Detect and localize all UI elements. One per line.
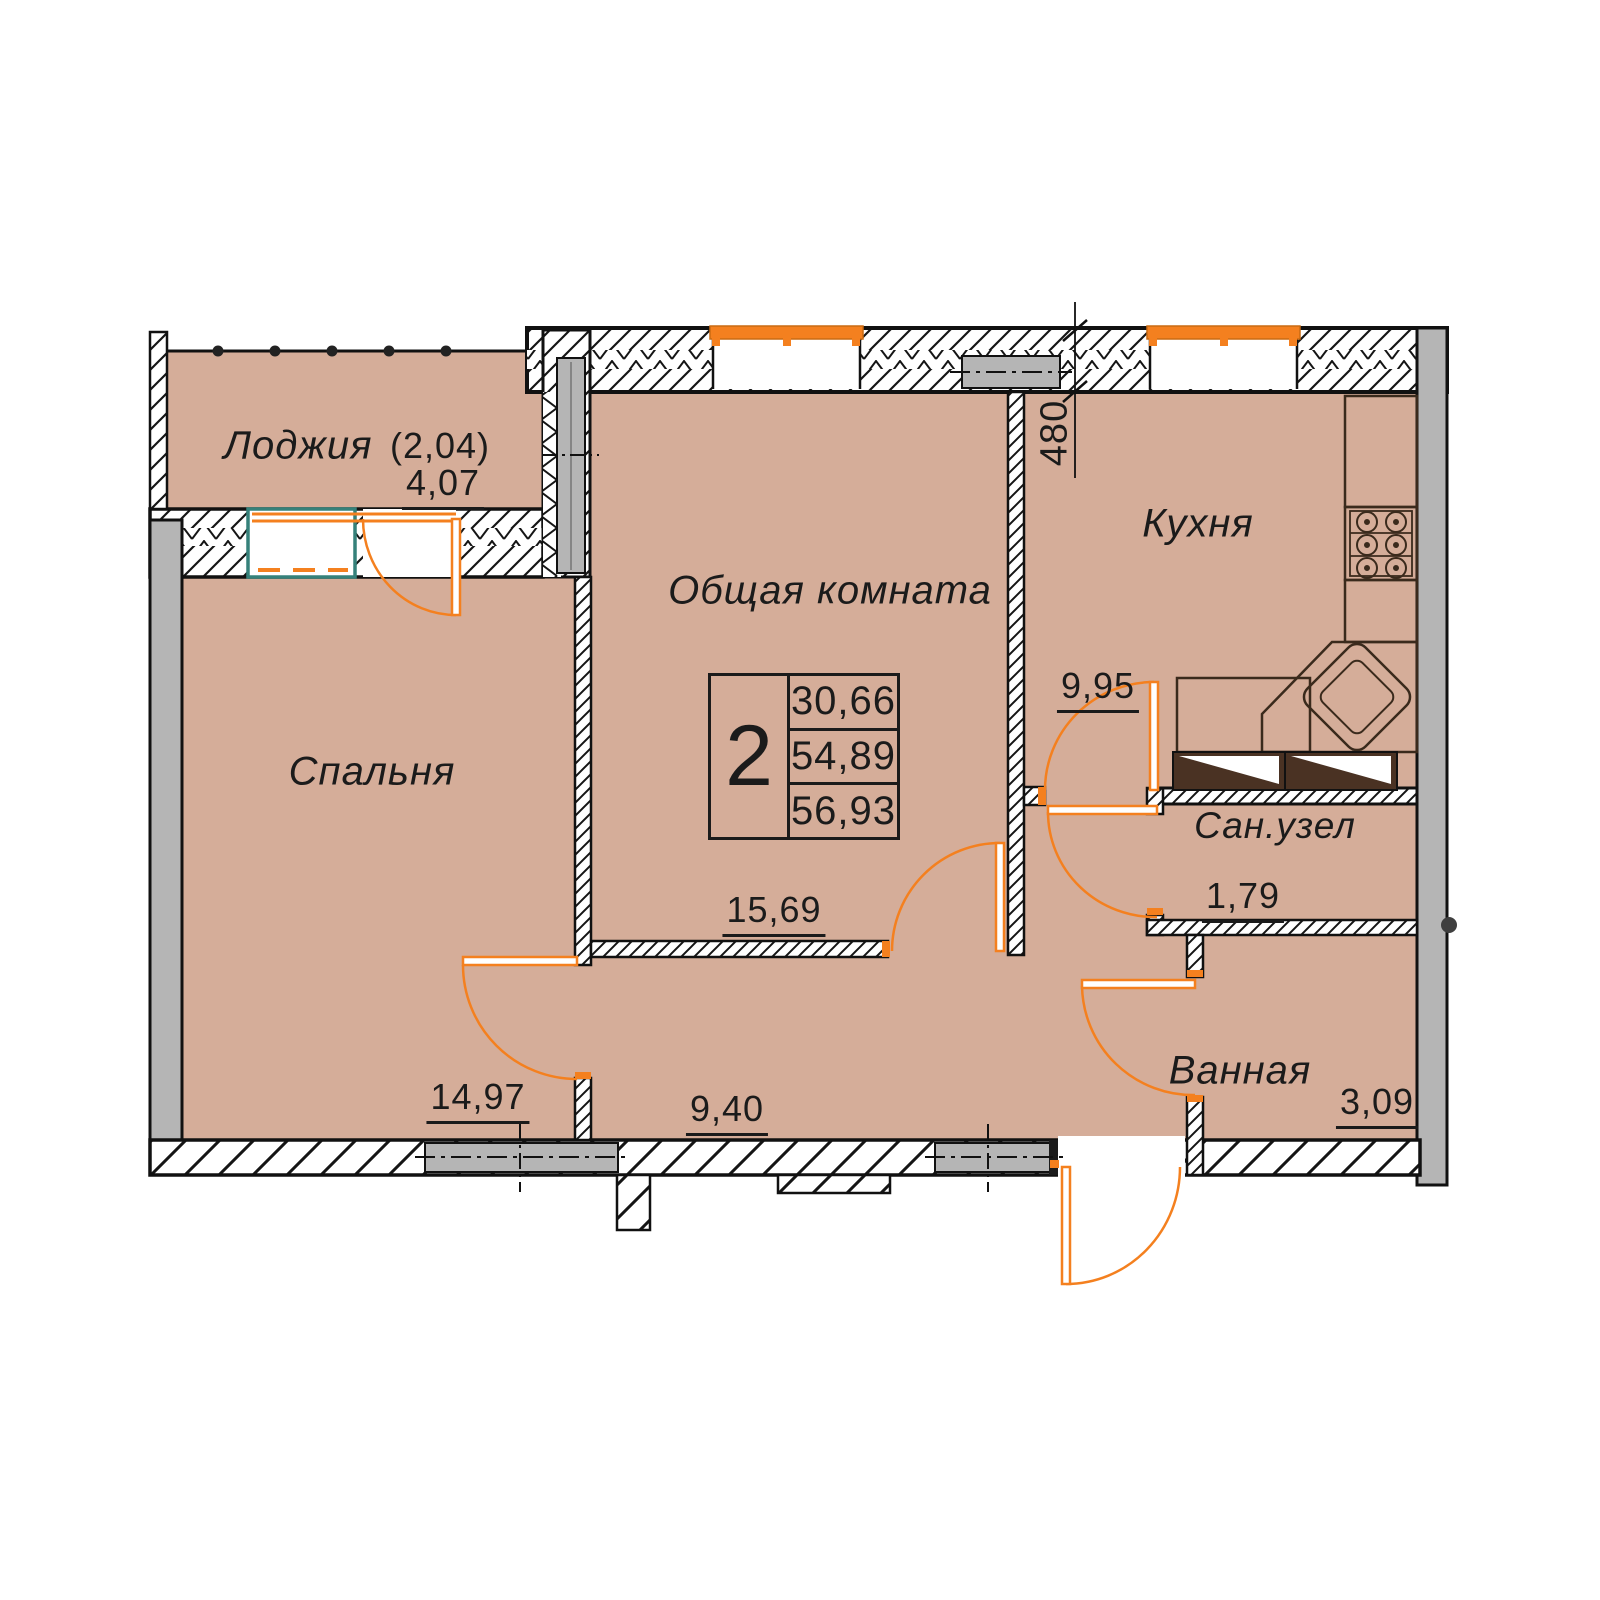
- living-area-value: 30,66: [790, 676, 897, 731]
- loggia-area: 4,07: [402, 462, 484, 504]
- room-label-living: Общая комната: [668, 569, 992, 614]
- rooms-count: 2: [711, 676, 790, 837]
- kitchen-area: 9,95: [1057, 665, 1139, 707]
- kitchen-window-icon: [1147, 326, 1300, 389]
- cabinet-icon: [1173, 752, 1397, 790]
- wall-bath-west-bottom: [1187, 1097, 1203, 1175]
- wall-right-gray: [1417, 328, 1447, 1185]
- floor-plan: Лоджия (2,04) 4,07 Спальня 14,97 Общая к…: [0, 0, 1600, 1600]
- wall-thickness-dimension: 480: [1034, 400, 1077, 466]
- wall-bedroom-stub: [575, 1078, 591, 1140]
- wall-living-hall: [591, 941, 888, 957]
- wall-living-kitchen: [1008, 392, 1024, 955]
- wall-bottom: [150, 1136, 1420, 1230]
- room-label-wc: Сан.узел: [1194, 805, 1356, 847]
- areas-table: 30,66 54,89 56,93: [790, 676, 897, 837]
- apartment-info-box: 2 30,66 54,89 56,93: [708, 673, 900, 840]
- apartment-area-value: 54,89: [790, 731, 897, 786]
- loggia-window-icon: [248, 509, 456, 577]
- room-label-bath: Ванная: [1169, 1049, 1312, 1094]
- bath-area: 3,09: [1336, 1081, 1418, 1123]
- room-label-bedroom: Спальня: [289, 750, 456, 795]
- pipe-stub: [1441, 917, 1457, 933]
- living-area: 15,69: [722, 889, 825, 931]
- bedroom-area: 14,97: [426, 1076, 529, 1118]
- lintel-block: [950, 356, 1072, 388]
- hall-area: 9,40: [686, 1088, 768, 1130]
- wall-left-gray: [150, 520, 182, 1172]
- wall-loggia-left: [150, 332, 167, 509]
- room-label-kitchen: Кухня: [1142, 502, 1254, 547]
- loggia-area-coeff: (2,04): [390, 425, 490, 467]
- wall-bedroom-living: [575, 577, 591, 965]
- room-label-loggia: Лоджия: [224, 424, 373, 469]
- total-area-value: 56,93: [790, 785, 897, 837]
- living-room-window-icon: [710, 326, 863, 389]
- wc-area: 1,79: [1202, 875, 1284, 917]
